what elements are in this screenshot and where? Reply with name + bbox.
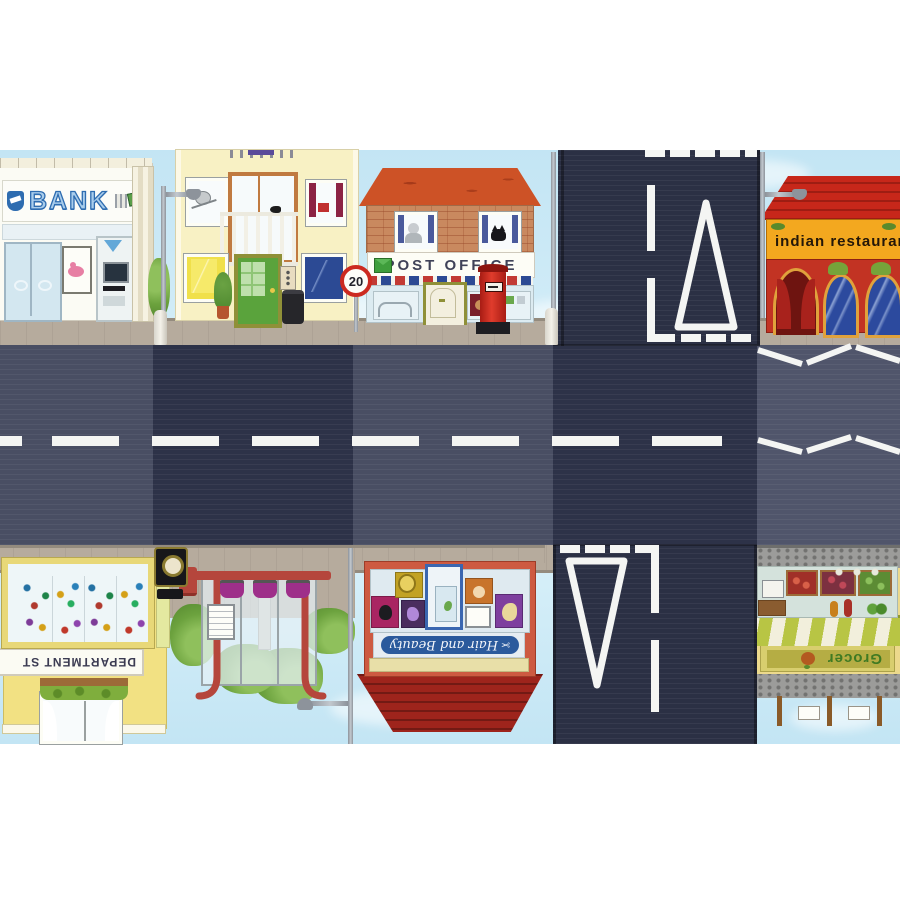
onion-dome bbox=[828, 262, 848, 275]
speed-limit-value: 20 bbox=[349, 274, 363, 289]
price-card bbox=[848, 706, 870, 720]
street-lamp-head bbox=[297, 698, 313, 710]
door-curtain bbox=[801, 279, 815, 329]
litter-bin bbox=[282, 290, 304, 324]
hb-picture-frame bbox=[465, 606, 491, 628]
atm bbox=[96, 236, 134, 322]
upper-window-shade bbox=[248, 150, 274, 155]
doorbell-panel bbox=[280, 266, 296, 290]
grocer-sign-label: Grocer bbox=[827, 651, 890, 668]
street-lamp-arm bbox=[765, 192, 795, 197]
pillar-postbox bbox=[480, 270, 506, 326]
hanging-greens bbox=[866, 602, 888, 616]
leaf-ornament bbox=[771, 223, 785, 230]
bird bbox=[270, 206, 281, 213]
hb-door bbox=[425, 564, 463, 630]
display-panel bbox=[84, 576, 116, 642]
bank-sign-label: BANK bbox=[29, 187, 109, 216]
street-lamp-pole bbox=[551, 152, 556, 315]
bollard bbox=[154, 310, 167, 345]
upstairs-window-person bbox=[395, 212, 437, 252]
street-lamp-arm bbox=[308, 701, 348, 706]
bus-stop-seat bbox=[253, 583, 277, 598]
piggy-bank-poster bbox=[62, 246, 92, 294]
timetable-sign bbox=[207, 604, 235, 640]
bus-stop-seat bbox=[220, 583, 244, 598]
plant-pot bbox=[217, 306, 229, 319]
speed-limit-sign: 20 bbox=[340, 265, 372, 297]
produce-crate-red bbox=[786, 570, 818, 596]
onion-dome bbox=[871, 262, 891, 275]
restaurant-roof bbox=[760, 176, 900, 220]
shelter-frame bbox=[170, 545, 355, 744]
street-lamp-pole bbox=[161, 186, 166, 318]
envelope-icon bbox=[374, 258, 392, 273]
hair-beauty-sign-label: Hair and Beauty bbox=[390, 638, 498, 653]
cauliflower-row bbox=[824, 568, 884, 576]
grocer-post bbox=[877, 696, 882, 726]
bank-shield-icon bbox=[7, 191, 24, 211]
department-store-sign-label: DEPARTMENT ST bbox=[22, 655, 142, 669]
hanging-produce bbox=[830, 601, 838, 617]
hb-poster-orange bbox=[465, 578, 493, 604]
town-house bbox=[170, 150, 355, 345]
leaf-ornament bbox=[882, 223, 896, 230]
hb-poster-gold bbox=[395, 572, 423, 598]
hanging-produce bbox=[844, 599, 852, 617]
indian-restaurant-sign-label: indian restaurant bbox=[775, 233, 900, 250]
hb-sign: ✂ Hair and Beauty bbox=[381, 636, 519, 654]
display-panel bbox=[116, 576, 148, 642]
window-box bbox=[40, 678, 128, 686]
door-curtain bbox=[777, 279, 791, 329]
arched-window bbox=[823, 274, 859, 338]
indian-restaurant-building: indian restaurant bbox=[757, 150, 900, 345]
grocer-kerb bbox=[757, 545, 900, 548]
bollard bbox=[545, 308, 558, 345]
post-office-sign: POST OFFICE bbox=[367, 252, 535, 278]
conifer-plant bbox=[214, 272, 232, 308]
traffic-light-lens bbox=[162, 555, 184, 577]
upstairs-window-cat bbox=[479, 212, 521, 252]
play-mat-photo: BANK bbox=[0, 0, 900, 900]
grocer-cobble-pavement bbox=[757, 545, 900, 568]
scissors-icon: ✂ bbox=[501, 639, 510, 652]
dept-kerb bbox=[0, 545, 170, 548]
arched-window bbox=[865, 274, 900, 338]
post-office-building: POST OFFICE bbox=[355, 150, 545, 345]
bus-stop-seat bbox=[286, 583, 310, 598]
grocer-counter bbox=[758, 600, 786, 616]
traffic-light bbox=[154, 547, 186, 599]
hb-roof bbox=[355, 674, 545, 732]
bus-stop-tile bbox=[170, 545, 355, 744]
hb-kerb bbox=[355, 545, 545, 548]
net-curtain bbox=[105, 701, 119, 741]
bank-sign: BANK bbox=[2, 180, 152, 222]
bank-cornice bbox=[0, 158, 152, 168]
grocer-post bbox=[827, 696, 832, 726]
centre-dash bbox=[0, 436, 22, 446]
hair-beauty-building: ✂ Hair and Beauty bbox=[355, 545, 545, 744]
give-way-triangle-top bbox=[678, 203, 734, 327]
grocer-awning bbox=[757, 615, 900, 646]
restaurant-door bbox=[773, 268, 819, 335]
price-card bbox=[798, 706, 820, 720]
speed-limit-pole bbox=[354, 294, 358, 332]
grocer-building: Grocer bbox=[757, 545, 900, 744]
zigzag-markings bbox=[758, 346, 900, 452]
grocer-post bbox=[777, 696, 782, 726]
hb-poster-purple bbox=[495, 594, 523, 628]
post-office-door bbox=[423, 282, 467, 325]
grocer-scales bbox=[762, 580, 784, 598]
post-office-roof bbox=[359, 168, 541, 206]
curtain-window bbox=[306, 180, 346, 226]
postbox-base bbox=[476, 322, 510, 334]
grocer-sign: Grocer bbox=[767, 650, 890, 668]
bank-building: BANK bbox=[0, 150, 170, 345]
net-curtain bbox=[43, 701, 57, 741]
bush bbox=[148, 258, 170, 318]
hb-poster-pink bbox=[371, 596, 399, 628]
grocer-roof-band bbox=[757, 672, 900, 698]
display-panel bbox=[20, 576, 52, 642]
window-box-plants bbox=[40, 684, 128, 700]
shop-window-left bbox=[373, 291, 419, 320]
department-store-building: DEPARTMENT ST bbox=[0, 545, 170, 744]
street-lamp-pole bbox=[348, 548, 353, 744]
postbox-slot bbox=[485, 282, 503, 292]
dept-display-window bbox=[2, 558, 154, 648]
restaurant-sign: indian restaurant bbox=[767, 220, 900, 263]
street-lamp-pole bbox=[760, 152, 765, 318]
atm-arrow-icon bbox=[104, 240, 122, 252]
hb-poster-dark bbox=[401, 600, 425, 628]
sofa-outline bbox=[378, 302, 412, 317]
front-door bbox=[234, 254, 282, 328]
bank-glass-doors bbox=[4, 242, 62, 322]
hb-fascia bbox=[369, 658, 529, 672]
dept-sign: DEPARTMENT ST bbox=[0, 648, 144, 676]
road-markings bbox=[0, 0, 900, 900]
give-way-triangle-bottom bbox=[569, 561, 624, 685]
apple-icon bbox=[801, 653, 815, 666]
display-panel bbox=[52, 576, 84, 642]
